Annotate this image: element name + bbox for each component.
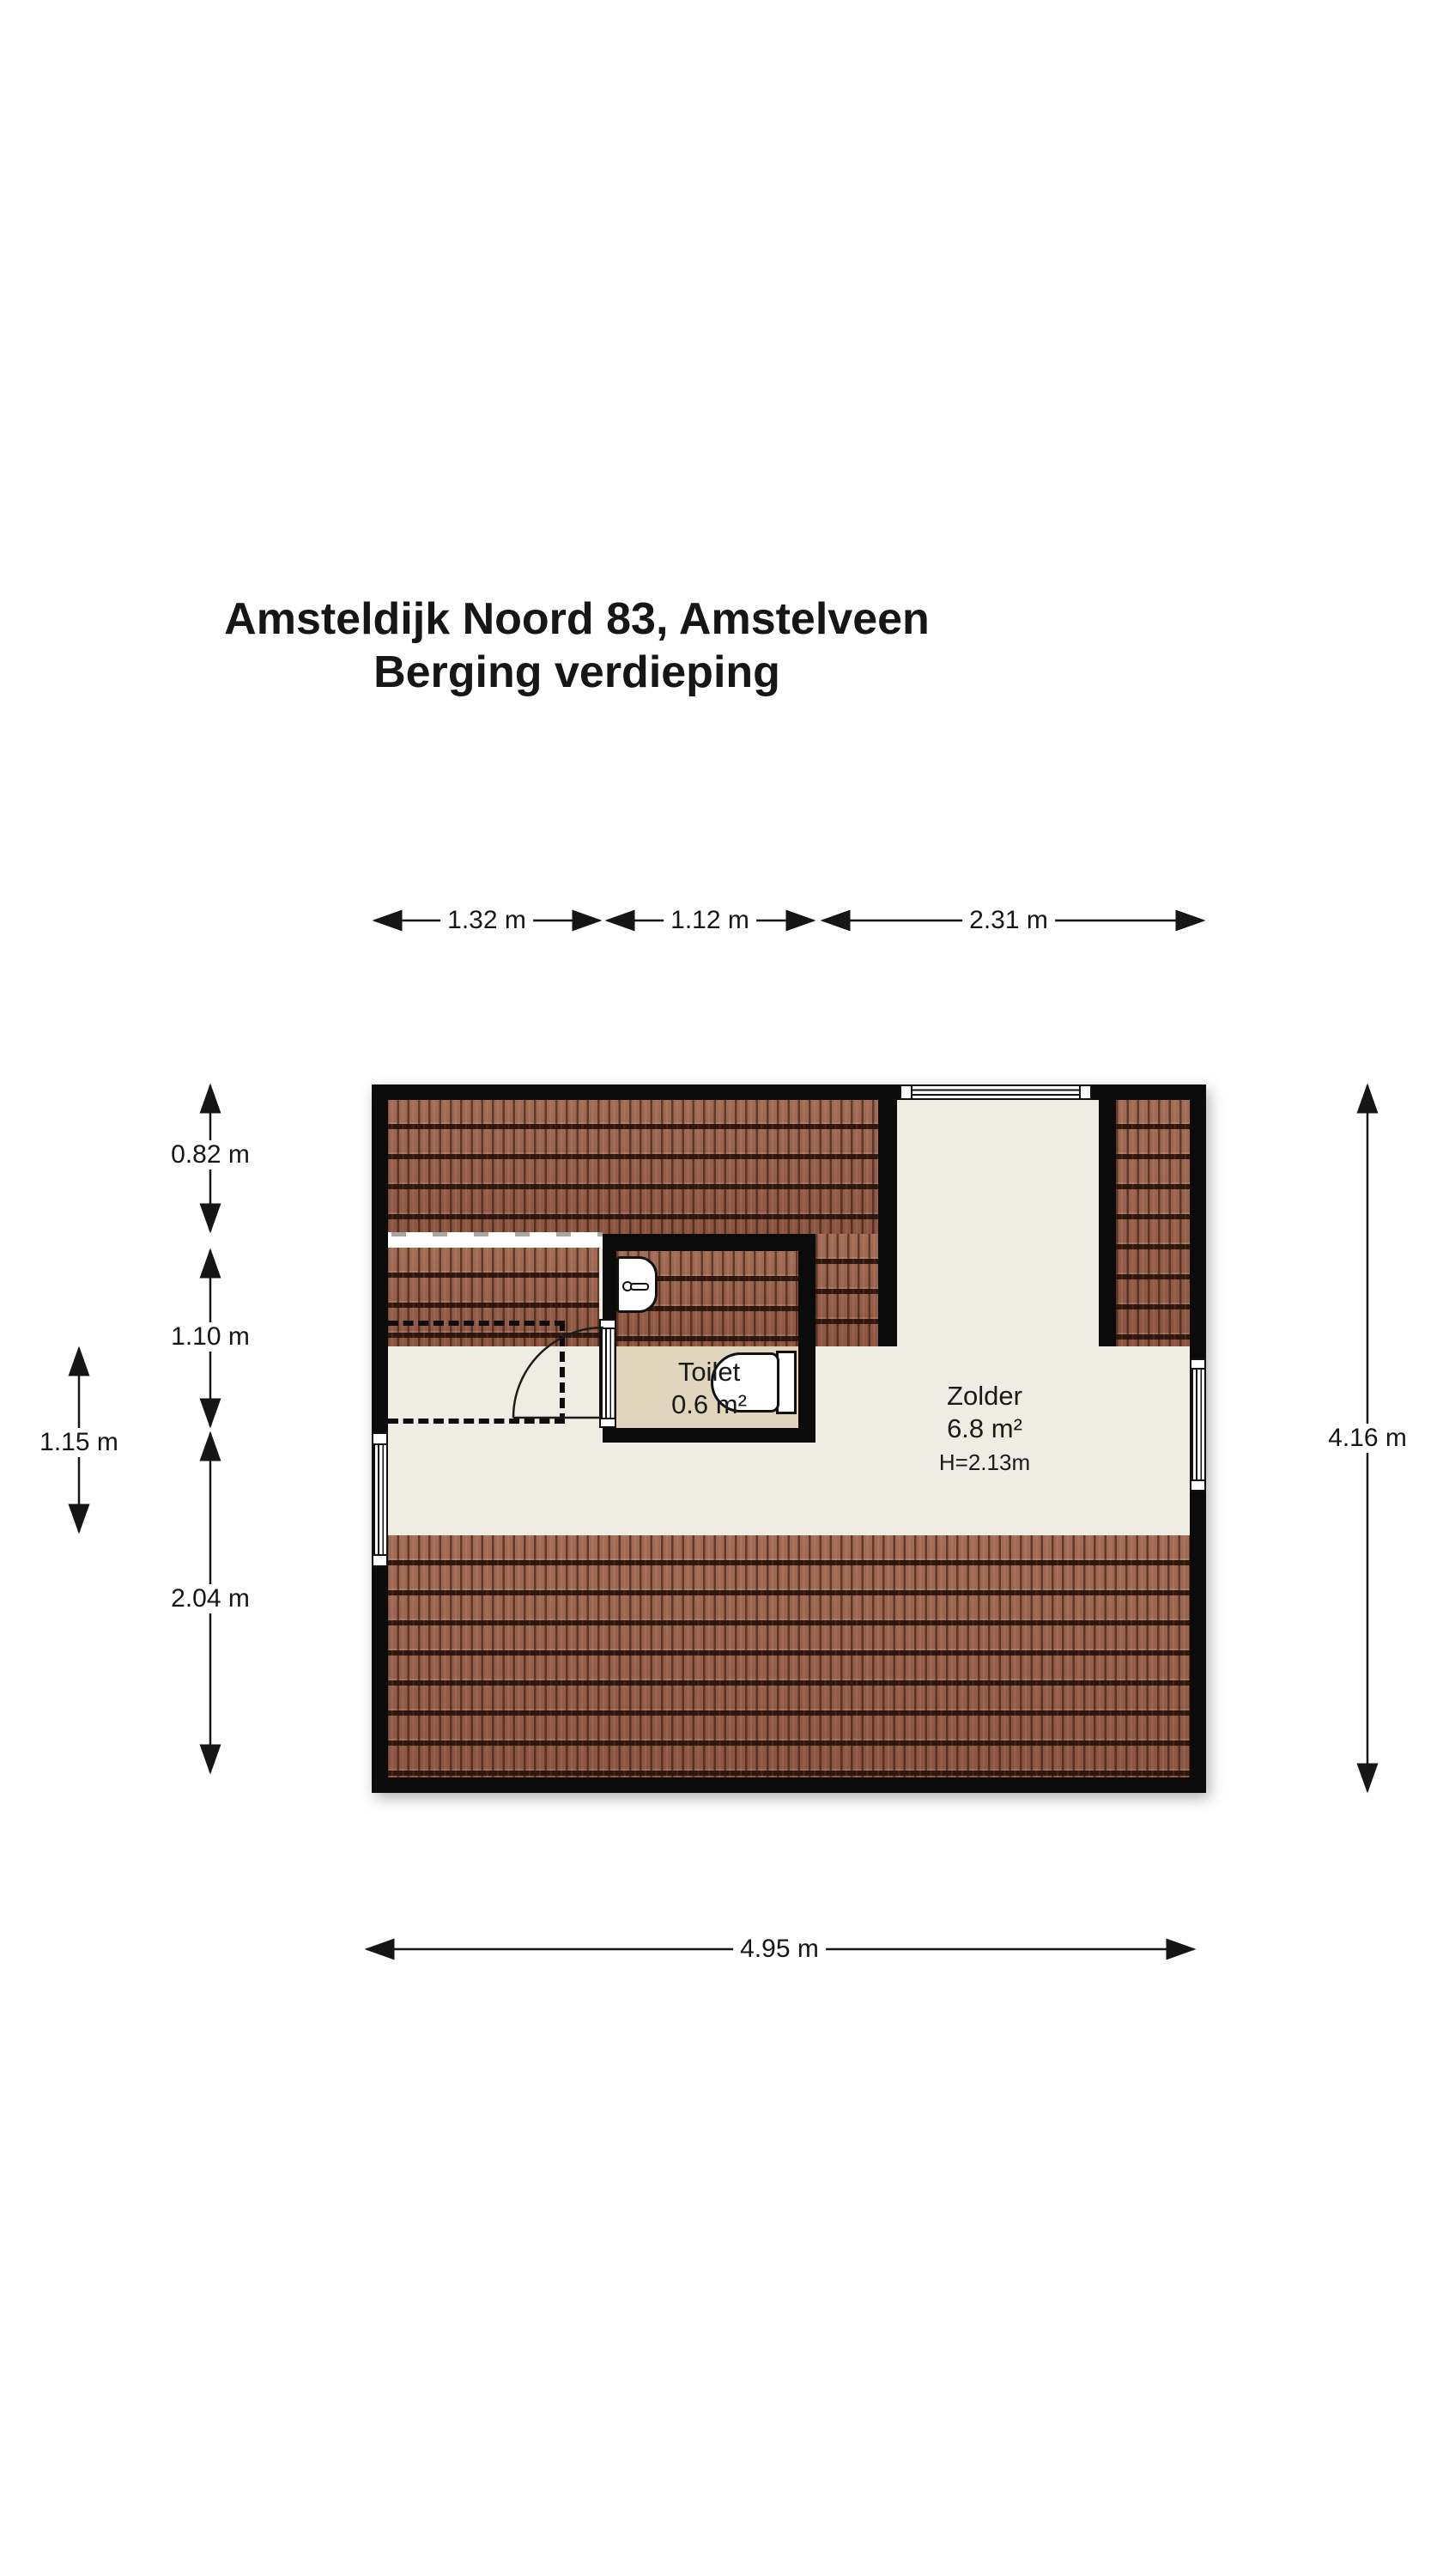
- window-left-wall: [372, 1432, 388, 1567]
- dim-top-1: 1.32 m: [440, 906, 533, 935]
- window-right-cap-bottom: [1190, 1479, 1206, 1492]
- toilet-door-cap-top: [599, 1319, 616, 1329]
- zolder-area: 6.8 m²: [873, 1413, 1096, 1445]
- roof-tiles-bottom: [386, 1535, 1191, 1777]
- dim-left-3: 2.04 m: [164, 1584, 257, 1613]
- floorplan-page: Amsteldijk Noord 83, Amstelveen Berging …: [0, 0, 1449, 2576]
- window-left-cap-top: [372, 1432, 388, 1445]
- sink-faucet-spout: [630, 1283, 649, 1291]
- window-right-cap-top: [1190, 1358, 1206, 1370]
- toilet-wall-bottom: [603, 1428, 815, 1443]
- zolder-ceiling-height: H=2.13m: [873, 1449, 1096, 1476]
- beam-stripe: [386, 1232, 603, 1248]
- floorplan: Toilet 0.6 m² Zolder 6.8 m² H=2.13m: [372, 1084, 1206, 1793]
- dim-left-outer: 1.15 m: [33, 1428, 125, 1457]
- roof-tiles-mid-sliver: [815, 1234, 878, 1346]
- toilet-label: Toilet 0.6 m²: [603, 1356, 815, 1421]
- toilet-area: 0.6 m²: [603, 1388, 815, 1421]
- dim-top-2: 1.12 m: [664, 906, 756, 935]
- stair-opening-dashed: [388, 1321, 565, 1424]
- dim-bottom: 4.95 m: [733, 1935, 826, 1964]
- zolder-label: Zolder 6.8 m² H=2.13m: [873, 1380, 1096, 1476]
- toilet-name: Toilet: [603, 1356, 815, 1388]
- window-top-glazing: [912, 1084, 1079, 1100]
- window-left-cap-bottom: [372, 1554, 388, 1567]
- roof-tiles-top-left: [386, 1099, 878, 1234]
- zolder-name: Zolder: [873, 1380, 1096, 1413]
- toilet-wall-left-upper: [603, 1234, 616, 1319]
- window-top-cap-right: [1079, 1084, 1092, 1100]
- interior-wall-left-of-corridor: [878, 1099, 897, 1346]
- window-top: [900, 1084, 1092, 1100]
- outer-wall-bottom: [372, 1777, 1206, 1793]
- window-left-glazing: [372, 1445, 388, 1554]
- dim-right: 4.16 m: [1321, 1424, 1414, 1453]
- roof-tiles-top-right: [1116, 1099, 1191, 1346]
- dim-top-3: 2.31 m: [962, 906, 1055, 935]
- toilet-wall-top: [603, 1234, 815, 1251]
- window-top-cap-left: [900, 1084, 912, 1100]
- dim-left-2: 1.10 m: [164, 1322, 257, 1352]
- title-floor: Berging verdieping: [199, 646, 955, 699]
- dim-left-1: 0.82 m: [164, 1140, 257, 1170]
- window-right-wall: [1190, 1358, 1206, 1492]
- window-right-glazing: [1190, 1370, 1206, 1479]
- page-title: Amsteldijk Noord 83, Amstelveen Berging …: [199, 592, 955, 699]
- sink: [616, 1256, 658, 1313]
- title-address: Amsteldijk Noord 83, Amstelveen: [199, 592, 955, 646]
- interior-wall-right-of-corridor: [1099, 1099, 1116, 1346]
